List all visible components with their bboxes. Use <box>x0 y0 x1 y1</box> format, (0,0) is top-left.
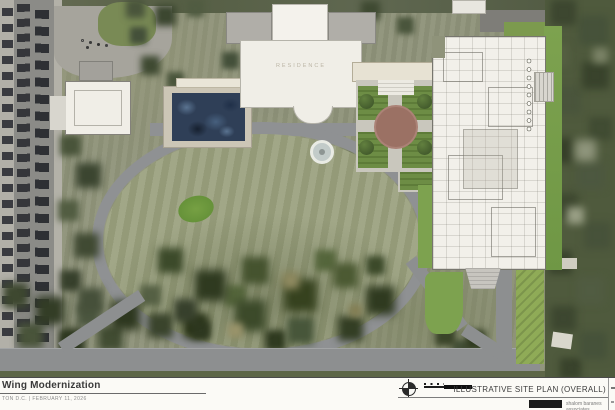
south-road-band <box>0 348 540 372</box>
south-portico-lawn-west <box>425 272 463 334</box>
pool-glass-roof <box>172 93 245 141</box>
garden-tree-sw <box>359 140 374 155</box>
people-dots <box>82 40 83 41</box>
garden-tree-ne <box>417 94 432 109</box>
title-block-divider <box>608 378 609 410</box>
fountain-center <box>319 149 325 155</box>
east-small-structure <box>551 332 573 350</box>
parked-cars-column-west <box>2 8 13 338</box>
parked-cars-column-2 <box>35 10 49 348</box>
plan-room-a <box>443 52 483 82</box>
title-rule-right <box>398 397 608 398</box>
scale-bar-ticks <box>424 383 444 385</box>
east-service-road <box>496 268 512 354</box>
residence-building: RESIDENCE <box>240 40 362 108</box>
tree-cluster-southwest <box>0 280 1 281</box>
east-colonnade-columns <box>526 57 532 133</box>
cutoff-text-sliver-top <box>611 387 615 389</box>
east-garden <box>356 80 436 172</box>
site-plan-sheet: RESIDENCE Wing Modernization TON D.C. | <box>0 0 615 410</box>
garden-tree-nw <box>359 94 374 109</box>
east-wing-nw-notch <box>432 36 445 58</box>
east-colonnade <box>352 62 444 82</box>
garden-steps <box>378 80 414 95</box>
tree-cluster-oval-autumn <box>140 240 141 241</box>
east-lawn-slope-hatched <box>516 268 544 364</box>
parked-cars-column-1 <box>17 4 30 344</box>
tree-cluster-west-grounds <box>58 130 59 131</box>
plan-room-d <box>491 207 536 257</box>
east-entrance-steps <box>534 72 554 102</box>
northwest-lawn-patch <box>98 2 156 46</box>
west-wing-annex-roof <box>79 61 113 81</box>
north-gate-structure <box>452 0 486 14</box>
west-wing-drive <box>50 96 66 130</box>
project-title: Wing Modernization <box>2 380 101 391</box>
sheet-title: ILLUSTRATIVE SITE PLAN (OVERALL) <box>453 385 606 394</box>
west-colonnade <box>176 78 242 88</box>
garden-tree-se <box>417 140 432 155</box>
east-lawn-strip <box>544 26 562 270</box>
firm-logo <box>529 400 562 408</box>
tree-cluster-north <box>120 0 121 1</box>
title-block: Wing Modernization TON D.C. | FEBRUARY 1… <box>0 377 615 410</box>
east-wing-building <box>432 36 546 270</box>
north-arrow-icon <box>402 382 416 396</box>
building-west-lawn <box>418 185 433 268</box>
cutoff-text-sliver-bottom <box>611 401 614 403</box>
west-wing-building <box>65 81 131 135</box>
west-wing-roof-line <box>74 90 122 126</box>
project-location-date: TON D.C. | FEBRUARY 11, 2026 <box>2 396 87 402</box>
pool-terrace <box>163 86 252 148</box>
plan-central-hall <box>463 129 518 189</box>
scale-bar-thin <box>424 386 444 388</box>
south-fountain <box>310 140 334 164</box>
tree-cluster-east-pale <box>545 0 546 1</box>
north-arrow-crosshair-v <box>408 379 409 398</box>
west-street <box>0 0 62 377</box>
title-rule-left <box>0 393 206 394</box>
garden-brick-plaza <box>374 105 418 149</box>
residence-label: RESIDENCE <box>241 63 361 69</box>
